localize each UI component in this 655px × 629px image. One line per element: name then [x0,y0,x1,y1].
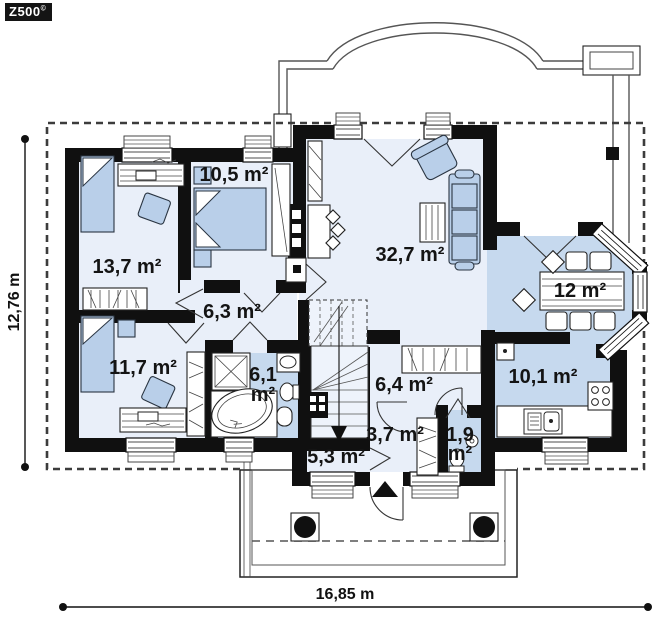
dimension-width-label: 16,85 m [316,586,375,603]
nightstand [194,250,211,267]
tv-stand [308,205,330,258]
rug [420,203,445,242]
wardrobe [83,288,147,310]
bathroom-sink [277,353,300,372]
porch-column-right [470,513,498,541]
floor-plan-page: Z500© [0,0,655,629]
shelf [308,141,322,201]
room-label-bathroom-line2: m² [251,384,276,406]
window [224,438,254,452]
room-label-dining-room: 12 m² [554,280,607,302]
bidet [277,407,292,426]
chair [590,252,611,270]
room-label-hall-entry: 6,4 m² [375,374,433,396]
staircase [306,300,368,442]
kitchen-counter [497,406,612,437]
wardrobe [402,346,481,373]
room-label-bedroom-top: 10,5 m² [200,164,269,186]
room-label-bedroom-top-left: 13,7 m² [93,256,162,278]
window [542,438,588,452]
flue-block [306,392,328,418]
room-label-hall: 6,3 m² [203,301,261,323]
nightstand [118,320,135,337]
room-label-wc-line2: m² [448,443,473,465]
chair [546,312,567,330]
window [334,125,362,139]
chair [566,252,587,270]
chair [570,312,591,330]
dimension-height-label: 12,76 m [6,273,23,332]
floor-plan-drawing: 13,7 m² 10,5 m² 32,7 m² 12 m² 10,1 m² 6,… [0,0,655,629]
boiler [497,343,514,360]
room-label-kitchen: 10,1 m² [509,366,578,388]
chimney-top-right [583,46,640,75]
window [310,472,355,486]
dimension-height: 12,76 m [6,135,29,471]
room-label-living-room: 32,7 m² [376,244,445,266]
toilet [280,383,299,401]
chimney-left [274,114,291,147]
wardrobe [272,164,290,256]
bay-window-segment [633,272,647,312]
sofa [449,170,480,270]
room-label-bathroom-line1: 6,1 [249,364,277,386]
room-label-vestibule: 5,3 m² [307,446,365,468]
shower [212,353,250,390]
dimension-width: 16,85 m [59,586,652,611]
room-label-bedroom-bottom-left: 11,7 m² [109,357,177,379]
stove [588,382,613,410]
room-label-corridor: 3,7 m² [366,424,424,446]
terrace-post [606,147,619,160]
wardrobe [187,352,205,436]
window [243,148,273,162]
chair [594,312,615,330]
window [126,438,176,452]
window [424,125,452,139]
window [122,148,172,162]
porch-column-left [291,513,319,541]
